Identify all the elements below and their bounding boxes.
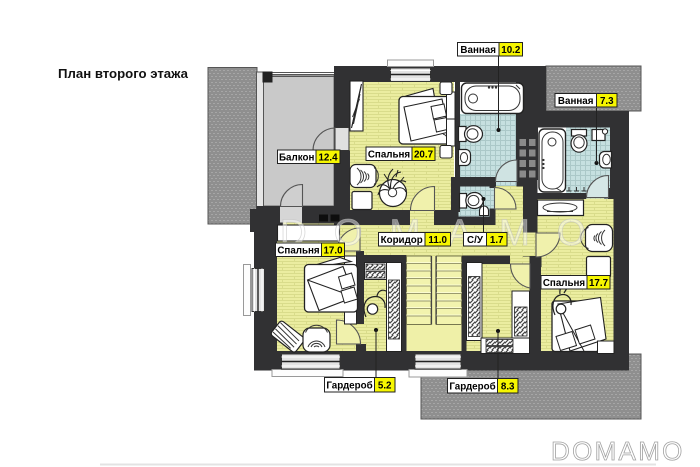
svg-text:17.0: 17.0 — [323, 246, 343, 257]
svg-text:7.3: 7.3 — [600, 96, 614, 107]
svg-text:С/У: С/У — [467, 235, 484, 246]
svg-text:10.2: 10.2 — [501, 45, 521, 56]
svg-text:Балкон: Балкон — [279, 153, 314, 164]
svg-text:Спальня: Спальня — [277, 246, 320, 257]
svg-text:Коридор: Коридор — [381, 235, 423, 246]
svg-text:Ванная: Ванная — [460, 45, 496, 56]
svg-text:8.3: 8.3 — [501, 382, 515, 393]
svg-text:Гардероб: Гардероб — [449, 382, 495, 393]
svg-text:11.0: 11.0 — [428, 235, 447, 246]
svg-text:DOMAMO: DOMAMO — [551, 436, 685, 466]
svg-text:План второго этажа: План второго этажа — [58, 66, 189, 81]
svg-text:1.7: 1.7 — [490, 235, 504, 246]
svg-text:5.2: 5.2 — [378, 381, 392, 392]
svg-text:12.4: 12.4 — [318, 153, 338, 164]
svg-text:Спальня: Спальня — [543, 278, 586, 289]
svg-text:Гардероб: Гардероб — [326, 381, 372, 392]
svg-text:17.7: 17.7 — [589, 278, 609, 289]
svg-text:Спальня: Спальня — [368, 150, 411, 161]
svg-text:Ванная: Ванная — [558, 96, 594, 107]
svg-text:20.7: 20.7 — [414, 150, 434, 161]
